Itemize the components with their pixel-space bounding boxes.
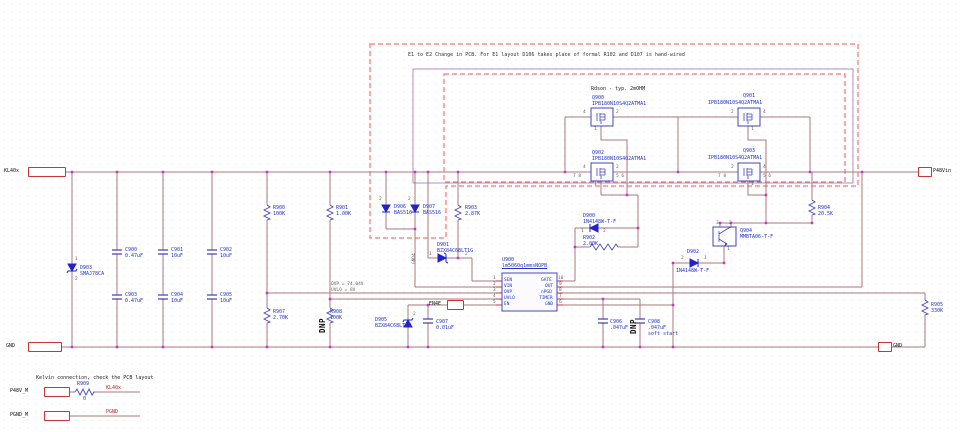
rdson-note: Rdson - typ. 2mOHM bbox=[591, 86, 645, 92]
d903-pin-top: 1 bbox=[75, 257, 78, 262]
c906-value[interactable]: .047uF bbox=[610, 325, 628, 331]
r902-value[interactable]: 2.00K bbox=[583, 241, 598, 247]
r900-value[interactable]: 100K bbox=[273, 211, 285, 217]
u900-pin-en: EN bbox=[504, 302, 509, 307]
d902-pin-right: 1 bbox=[704, 256, 707, 261]
d905-value[interactable]: BZX84C68LT1G bbox=[375, 323, 411, 329]
u900-pin3-num: 3 bbox=[493, 288, 496, 293]
q902-pins-extra-right: 5 6 bbox=[616, 174, 624, 179]
kelvin-note: Kelvin connection, check the PCB layout bbox=[36, 375, 153, 381]
c905-value[interactable]: 10uF bbox=[220, 298, 232, 304]
q903-ref[interactable]: Q903 bbox=[743, 148, 755, 154]
d906-value[interactable]: BAS516 bbox=[394, 210, 412, 216]
port-gnd-left[interactable] bbox=[28, 342, 62, 352]
r901-value[interactable]: 1.00K bbox=[336, 211, 351, 217]
port-en4e[interactable] bbox=[447, 300, 464, 310]
d901-pin-right: 2 bbox=[465, 252, 468, 257]
q902-pin-gate: 1 bbox=[594, 182, 597, 187]
u900-pin7-num: 7 bbox=[559, 294, 562, 299]
r903-value[interactable]: 2.87K bbox=[465, 211, 480, 217]
d902-pin-left: 2 bbox=[681, 256, 684, 261]
port-gnd-right-label: GND bbox=[893, 343, 902, 349]
port-en4e-label: EN4E bbox=[429, 301, 441, 307]
d901-pin-left: 1 bbox=[429, 252, 432, 257]
port-kl40x-label: KL40x bbox=[4, 168, 19, 174]
c904-value[interactable]: 10uF bbox=[171, 298, 183, 304]
d907-pin-top: 2 bbox=[408, 197, 411, 202]
c907-value[interactable]: 0.01uF bbox=[436, 325, 454, 331]
d902-value[interactable]: 1N4148W-T-F bbox=[676, 268, 709, 274]
change-note: E1 to E2 Change in PCB. For E1 layout D1… bbox=[408, 52, 685, 58]
c902-value[interactable]: 10uF bbox=[220, 253, 232, 259]
u900-pin2-num: 2 bbox=[493, 282, 496, 287]
port-kl40x[interactable] bbox=[28, 167, 66, 177]
c901-value[interactable]: 10uF bbox=[171, 253, 183, 259]
q902-pin-left: 4 bbox=[583, 165, 586, 170]
q902-pin-right: 2 bbox=[616, 165, 619, 170]
port-p48vin[interactable] bbox=[918, 167, 932, 177]
port-p48v-m[interactable] bbox=[44, 387, 70, 397]
q901-pin-gate: 1 bbox=[751, 127, 754, 132]
c903-value[interactable]: 0.47uF bbox=[125, 298, 143, 304]
u900-pin9-num: 9 bbox=[559, 282, 562, 287]
uvlo-note: UVLO = 8V bbox=[331, 288, 355, 293]
ovp-note: OVP = 74.04V bbox=[331, 282, 364, 287]
bjt-symbol[interactable] bbox=[713, 227, 736, 246]
u900-part[interactable]: lm5060q1mmsNOPB bbox=[502, 263, 547, 269]
port-pgnd-m-label: PGND_M bbox=[10, 412, 28, 418]
d907-value[interactable]: BAS516 bbox=[423, 210, 441, 216]
port-gnd-right[interactable] bbox=[878, 342, 892, 352]
q901-pin-right: 4 bbox=[763, 110, 766, 115]
q904-part[interactable]: MMBTA06-T-F bbox=[740, 234, 773, 240]
u900-pin-gate: GATE bbox=[541, 278, 552, 283]
d900-pin-right: 2 bbox=[603, 229, 606, 234]
d903-pin-bottom: 2 bbox=[75, 277, 78, 282]
q903-pins-extra-right: 5 6 bbox=[763, 174, 771, 179]
u900-pin-sen: SEN bbox=[504, 278, 512, 283]
u900-pin-uvlo: UVLO bbox=[504, 296, 515, 301]
d900-pin-left: 1 bbox=[581, 229, 584, 234]
u900-pin-gnd: GND bbox=[545, 302, 553, 307]
d905-pin-top: 2 bbox=[413, 312, 416, 317]
dnp-marker-r908: DNP bbox=[320, 318, 326, 333]
schematic-canvas: E1 to E2 Change in PCB. For E1 layout D1… bbox=[0, 0, 960, 432]
u900-pin6-num: 6 bbox=[559, 300, 562, 305]
d900-value[interactable]: 1N4148W-T-F bbox=[583, 219, 616, 225]
dashed-change-region bbox=[370, 44, 858, 238]
q901-part[interactable]: IPB180N10S4Q2ATMA1 bbox=[708, 100, 762, 106]
u900-pin10-num: 10 bbox=[558, 276, 563, 281]
q900-pin-gate: 1 bbox=[594, 127, 597, 132]
q900-pin-left: 4 bbox=[583, 110, 586, 115]
q902-part[interactable]: IPB180N10S4Q2ATMA1 bbox=[592, 156, 646, 162]
r908-value[interactable]: 100K bbox=[330, 315, 342, 321]
wires[interactable] bbox=[60, 117, 925, 416]
q903-pin-left: 2 bbox=[731, 165, 734, 170]
q903-pin-gate: 1 bbox=[751, 182, 754, 187]
net-label-pgnd: PGND bbox=[106, 409, 118, 415]
u900-pin-vin: VIN bbox=[504, 284, 512, 289]
port-p48vin-label: P48Vin bbox=[933, 168, 951, 174]
q903-part[interactable]: IPB180N10S4Q2ATMA1 bbox=[708, 155, 762, 161]
d903-value[interactable]: SMAJ78CA bbox=[80, 271, 104, 277]
u900-pin-npgd: nPGD bbox=[541, 290, 552, 295]
q900-pin-right: 2 bbox=[616, 110, 619, 115]
dnp-marker-c908: DNP bbox=[631, 319, 637, 334]
q904-pin-c: 1 bbox=[727, 247, 730, 252]
c900-value[interactable]: 0.47uF bbox=[125, 253, 143, 259]
q902-pins-extra-left: 7 8 bbox=[573, 174, 581, 179]
r909-ref[interactable]: R909 bbox=[77, 381, 89, 387]
q903-pin-right: 4 bbox=[763, 165, 766, 170]
r904-value[interactable]: 20.5K bbox=[818, 211, 833, 217]
port-pgnd-m[interactable] bbox=[44, 411, 70, 421]
port-gnd-left-label: GND bbox=[6, 343, 15, 349]
q901-pin-left: 2 bbox=[731, 110, 734, 115]
u900-pin4-num: 4 bbox=[493, 294, 496, 299]
r905-value[interactable]: 330K bbox=[931, 308, 943, 314]
d906-pin-top: 2 bbox=[379, 197, 382, 202]
q904-pin-a: 3 bbox=[716, 221, 719, 226]
u900-pin-ovp: OVP bbox=[504, 290, 512, 295]
c908-soft-start-note: soft start bbox=[648, 331, 678, 337]
q901-ref[interactable]: Q901 bbox=[743, 93, 755, 99]
u900-pin8-num: 8 bbox=[559, 288, 562, 293]
q904-pin-b: 2 bbox=[729, 221, 732, 226]
gnd4-label: GND4 bbox=[412, 253, 417, 264]
u900-pin5-num: 5 bbox=[493, 300, 496, 305]
r907-value[interactable]: 2.70K bbox=[273, 315, 288, 321]
q900-part[interactable]: IPB180N10S4Q2ATMA1 bbox=[592, 101, 646, 107]
net-label-kl40x: KL40x bbox=[106, 385, 121, 391]
u900-pin-timer: TIMER bbox=[539, 296, 553, 301]
q903-pins-extra-left: 7 8 bbox=[718, 174, 726, 179]
u900-pin1-num: 1 bbox=[493, 276, 496, 281]
junction-dots bbox=[71, 171, 864, 349]
mosfet-symbols[interactable] bbox=[591, 108, 760, 181]
r909-value[interactable]: 0 bbox=[83, 396, 86, 402]
port-p48v-m-label: P48V_M bbox=[10, 388, 28, 394]
u900-pin-out: OUT bbox=[545, 284, 553, 289]
d902-ref[interactable]: D902 bbox=[687, 249, 699, 255]
